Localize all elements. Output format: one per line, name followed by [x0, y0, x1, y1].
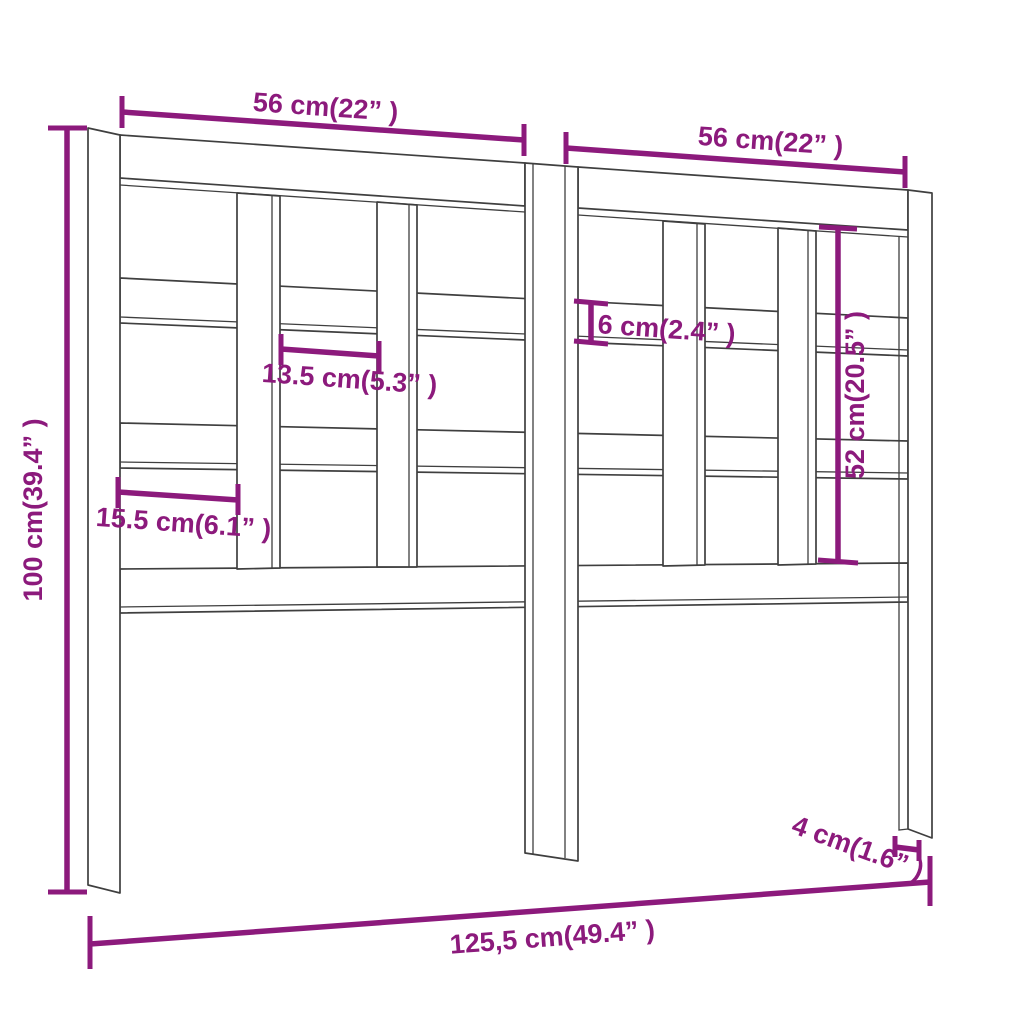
headboard-dimension-diagram: 56 cm(22” ) 56 cm(22” ) 100 cm(39.4” ) 1… — [0, 0, 1024, 1024]
right-leg — [908, 190, 932, 838]
top-rail-left — [120, 135, 525, 206]
dim-height-overall: 100 cm(39.4” ) — [18, 128, 87, 892]
dim-label-panel-opening-height: 52 cm(20.5” ) — [840, 311, 870, 479]
diagram-canvas: 56 cm(22” ) 56 cm(22” ) 100 cm(39.4” ) 1… — [0, 0, 1024, 1024]
dim-width-overall: 125,5 cm(49.4” ) — [90, 856, 930, 969]
dim-label-width-right-section: 56 cm(22” ) — [697, 121, 844, 161]
dim-label-width-overall: 125,5 cm(49.4” ) — [449, 914, 656, 959]
dim-leg-thickness: 4 cm(1.6” ) — [788, 810, 928, 885]
dim-panel-opening-height: 52 cm(20.5” ) — [818, 227, 870, 563]
vertical-slat-4 — [778, 228, 816, 565]
top-rail-right — [578, 167, 908, 230]
dim-line — [118, 492, 238, 500]
vertical-slat-3 — [663, 221, 705, 566]
dim-line — [281, 349, 379, 356]
dim-label-height-overall: 100 cm(39.4” ) — [18, 418, 48, 601]
